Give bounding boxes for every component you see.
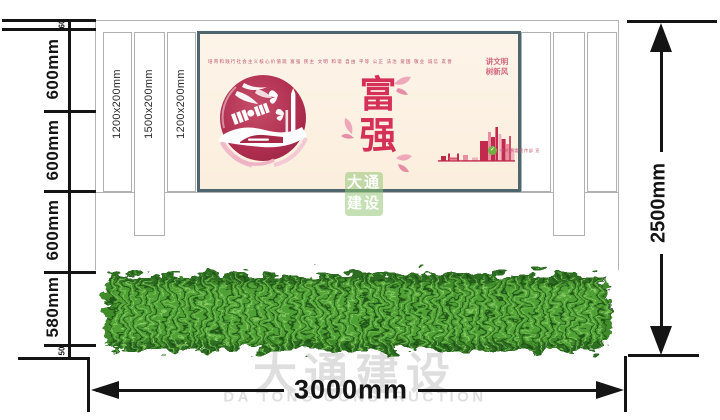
- slogan-line-1: 讲文明: [484, 57, 510, 67]
- dimension-tick: [44, 271, 96, 274]
- dimension-tick: [44, 344, 96, 347]
- dimension-label-600-1: 600mm: [43, 38, 63, 99]
- dimension-tick: [2, 28, 96, 31]
- watermark-seal: 大通 建设: [345, 172, 383, 216]
- pillar-size-label-3: 1200x200mm: [175, 69, 187, 139]
- height-dimension-line: [660, 48, 663, 152]
- pillar-size-label-1: 1200x200mm: [111, 69, 123, 139]
- dimension-tick: [627, 20, 717, 23]
- watermark-seal-line-1: 大通: [345, 172, 383, 193]
- height-dimension-line: [660, 254, 663, 330]
- arrow-down-icon: [650, 326, 672, 355]
- dimension-tick: [2, 19, 96, 22]
- pillar-right-3: [587, 32, 617, 192]
- dimension-label-50: 50: [58, 347, 67, 356]
- signage-elevation-drawing: 大通建设 DA TONG CONSTRUCTION 1200x200mm 150…: [0, 0, 720, 420]
- dimension-tick: [44, 110, 96, 113]
- city-skyline: [436, 124, 518, 166]
- papercut-emblem: [214, 70, 314, 170]
- dimension-label-600-2: 600mm: [43, 119, 63, 180]
- width-dimension-label: 3000mm: [294, 375, 408, 406]
- dimension-label-580: 580mm: [43, 276, 63, 337]
- dimension-tick: [18, 357, 90, 360]
- extension-line-right: [624, 356, 627, 412]
- height-dimension-label: 2500mm: [648, 163, 671, 243]
- core-values-text: 培育和践行社会主义核心价值观 富强 民主 文明 和谐 自由 平等 公正 法治 爱…: [208, 59, 438, 65]
- arrow-left-icon: [91, 381, 119, 399]
- extension-line-left: [87, 357, 90, 412]
- pillar-right-2: [553, 32, 585, 236]
- slogan-text: 讲文明 树新风: [484, 57, 510, 77]
- hedge-image: [91, 262, 623, 362]
- credit-badge-icon: ✓: [488, 146, 497, 155]
- dimension-tick: [44, 190, 96, 193]
- dimension-label-600-3: 600mm: [43, 199, 63, 260]
- dimension-label-60: 60: [58, 20, 67, 29]
- width-dimension-line: [96, 389, 284, 392]
- watermark-seal-line-2: 建设: [345, 193, 383, 214]
- pillar-right-1: [521, 32, 551, 192]
- poster-panel: 培育和践行社会主义核心价值观 富强 民主 文明 和谐 自由 平等 公正 法治 爱…: [197, 31, 521, 192]
- credit-text: 中共市委宣传部 宣: [500, 148, 540, 154]
- width-dimension-line: [418, 389, 596, 392]
- arrow-right-icon: [596, 381, 624, 399]
- slogan-line-2: 树新风: [484, 67, 510, 77]
- pillar-size-label-2: 1500x200mm: [143, 69, 155, 139]
- wall-top-edge: [95, 20, 619, 21]
- wall-left-edge: [95, 20, 96, 270]
- wall-right-edge: [618, 20, 619, 270]
- arrow-up-icon: [650, 23, 672, 52]
